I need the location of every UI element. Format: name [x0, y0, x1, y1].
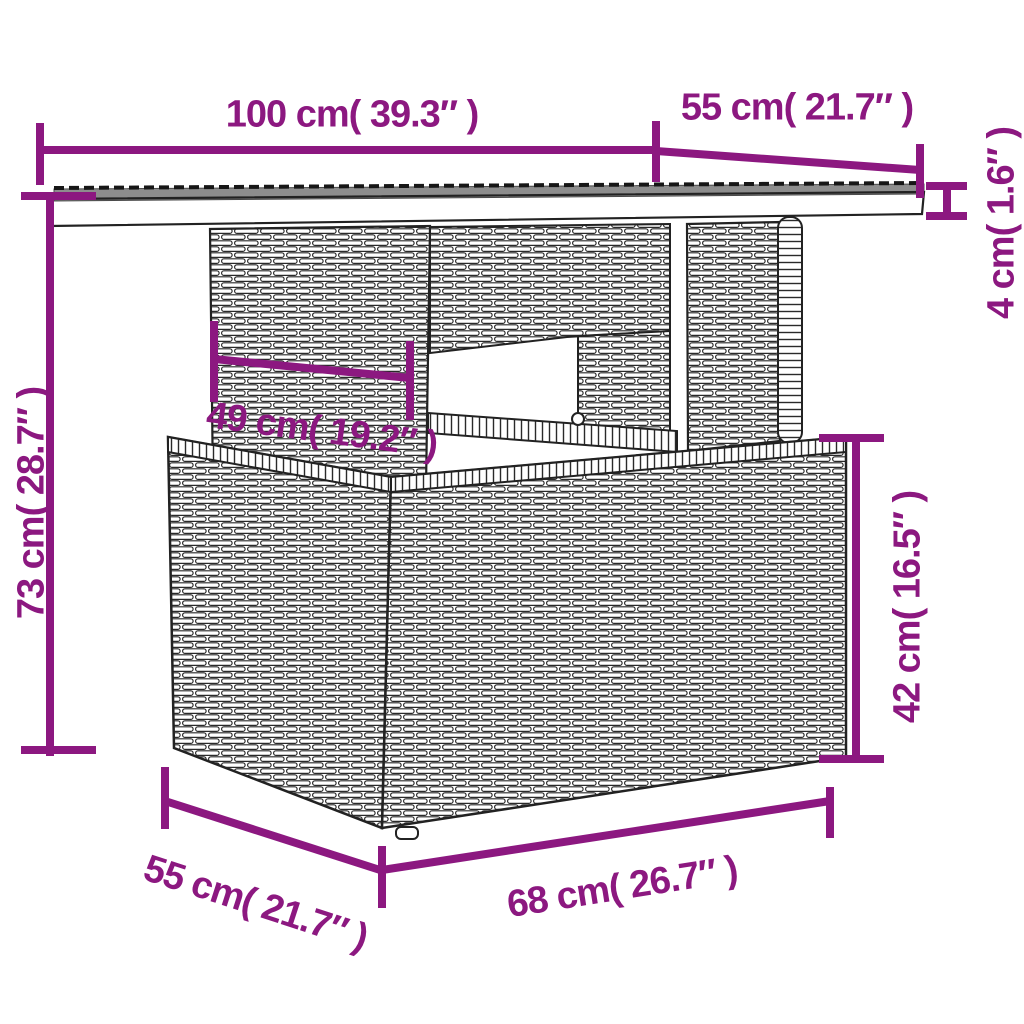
dim-line: [656, 151, 920, 170]
dimension-top-depth: 55 cm( 21.7″ ): [656, 86, 920, 198]
pedestal-roll-knob: [572, 413, 584, 425]
dim-label-base-height: 42 cm( 16.5″ ): [886, 491, 928, 723]
dim-label-top-thickness: 4 cm( 1.6″ ): [980, 127, 1022, 319]
dim-label-top-width: 100 cm( 39.3″ ): [226, 93, 478, 135]
pedestal-right-panel: [687, 222, 781, 451]
base-box: [168, 437, 846, 839]
dim-label-top-depth: 55 cm( 21.7″ ): [681, 86, 913, 128]
dim-label-overall-height: 73 cm( 28.7″ ): [10, 387, 52, 619]
base-right-face: [382, 437, 846, 828]
dimension-overall-height: 73 cm( 28.7″ ): [10, 196, 96, 756]
base-foot: [396, 827, 418, 839]
furniture-dimension-diagram: 100 cm( 39.3″ ) 55 cm( 21.7″ ) 4 cm( 1.6…: [0, 0, 1024, 1024]
dimension-diagram-page: 100 cm( 39.3″ ) 55 cm( 21.7″ ) 4 cm( 1.6…: [0, 0, 1024, 1024]
table-drawing: [50, 183, 924, 839]
base-left-face: [168, 437, 391, 828]
dimension-top-width: 100 cm( 39.3″ ): [40, 93, 656, 185]
dimension-top-thickness: 4 cm( 1.6″ ): [926, 127, 1022, 319]
dim-label-base-width: 68 cm( 26.7″ ): [504, 848, 740, 926]
dim-label-base-depth: 55 cm( 21.7″ ): [139, 847, 373, 959]
pedestal-right-edge-coil: [778, 217, 802, 443]
